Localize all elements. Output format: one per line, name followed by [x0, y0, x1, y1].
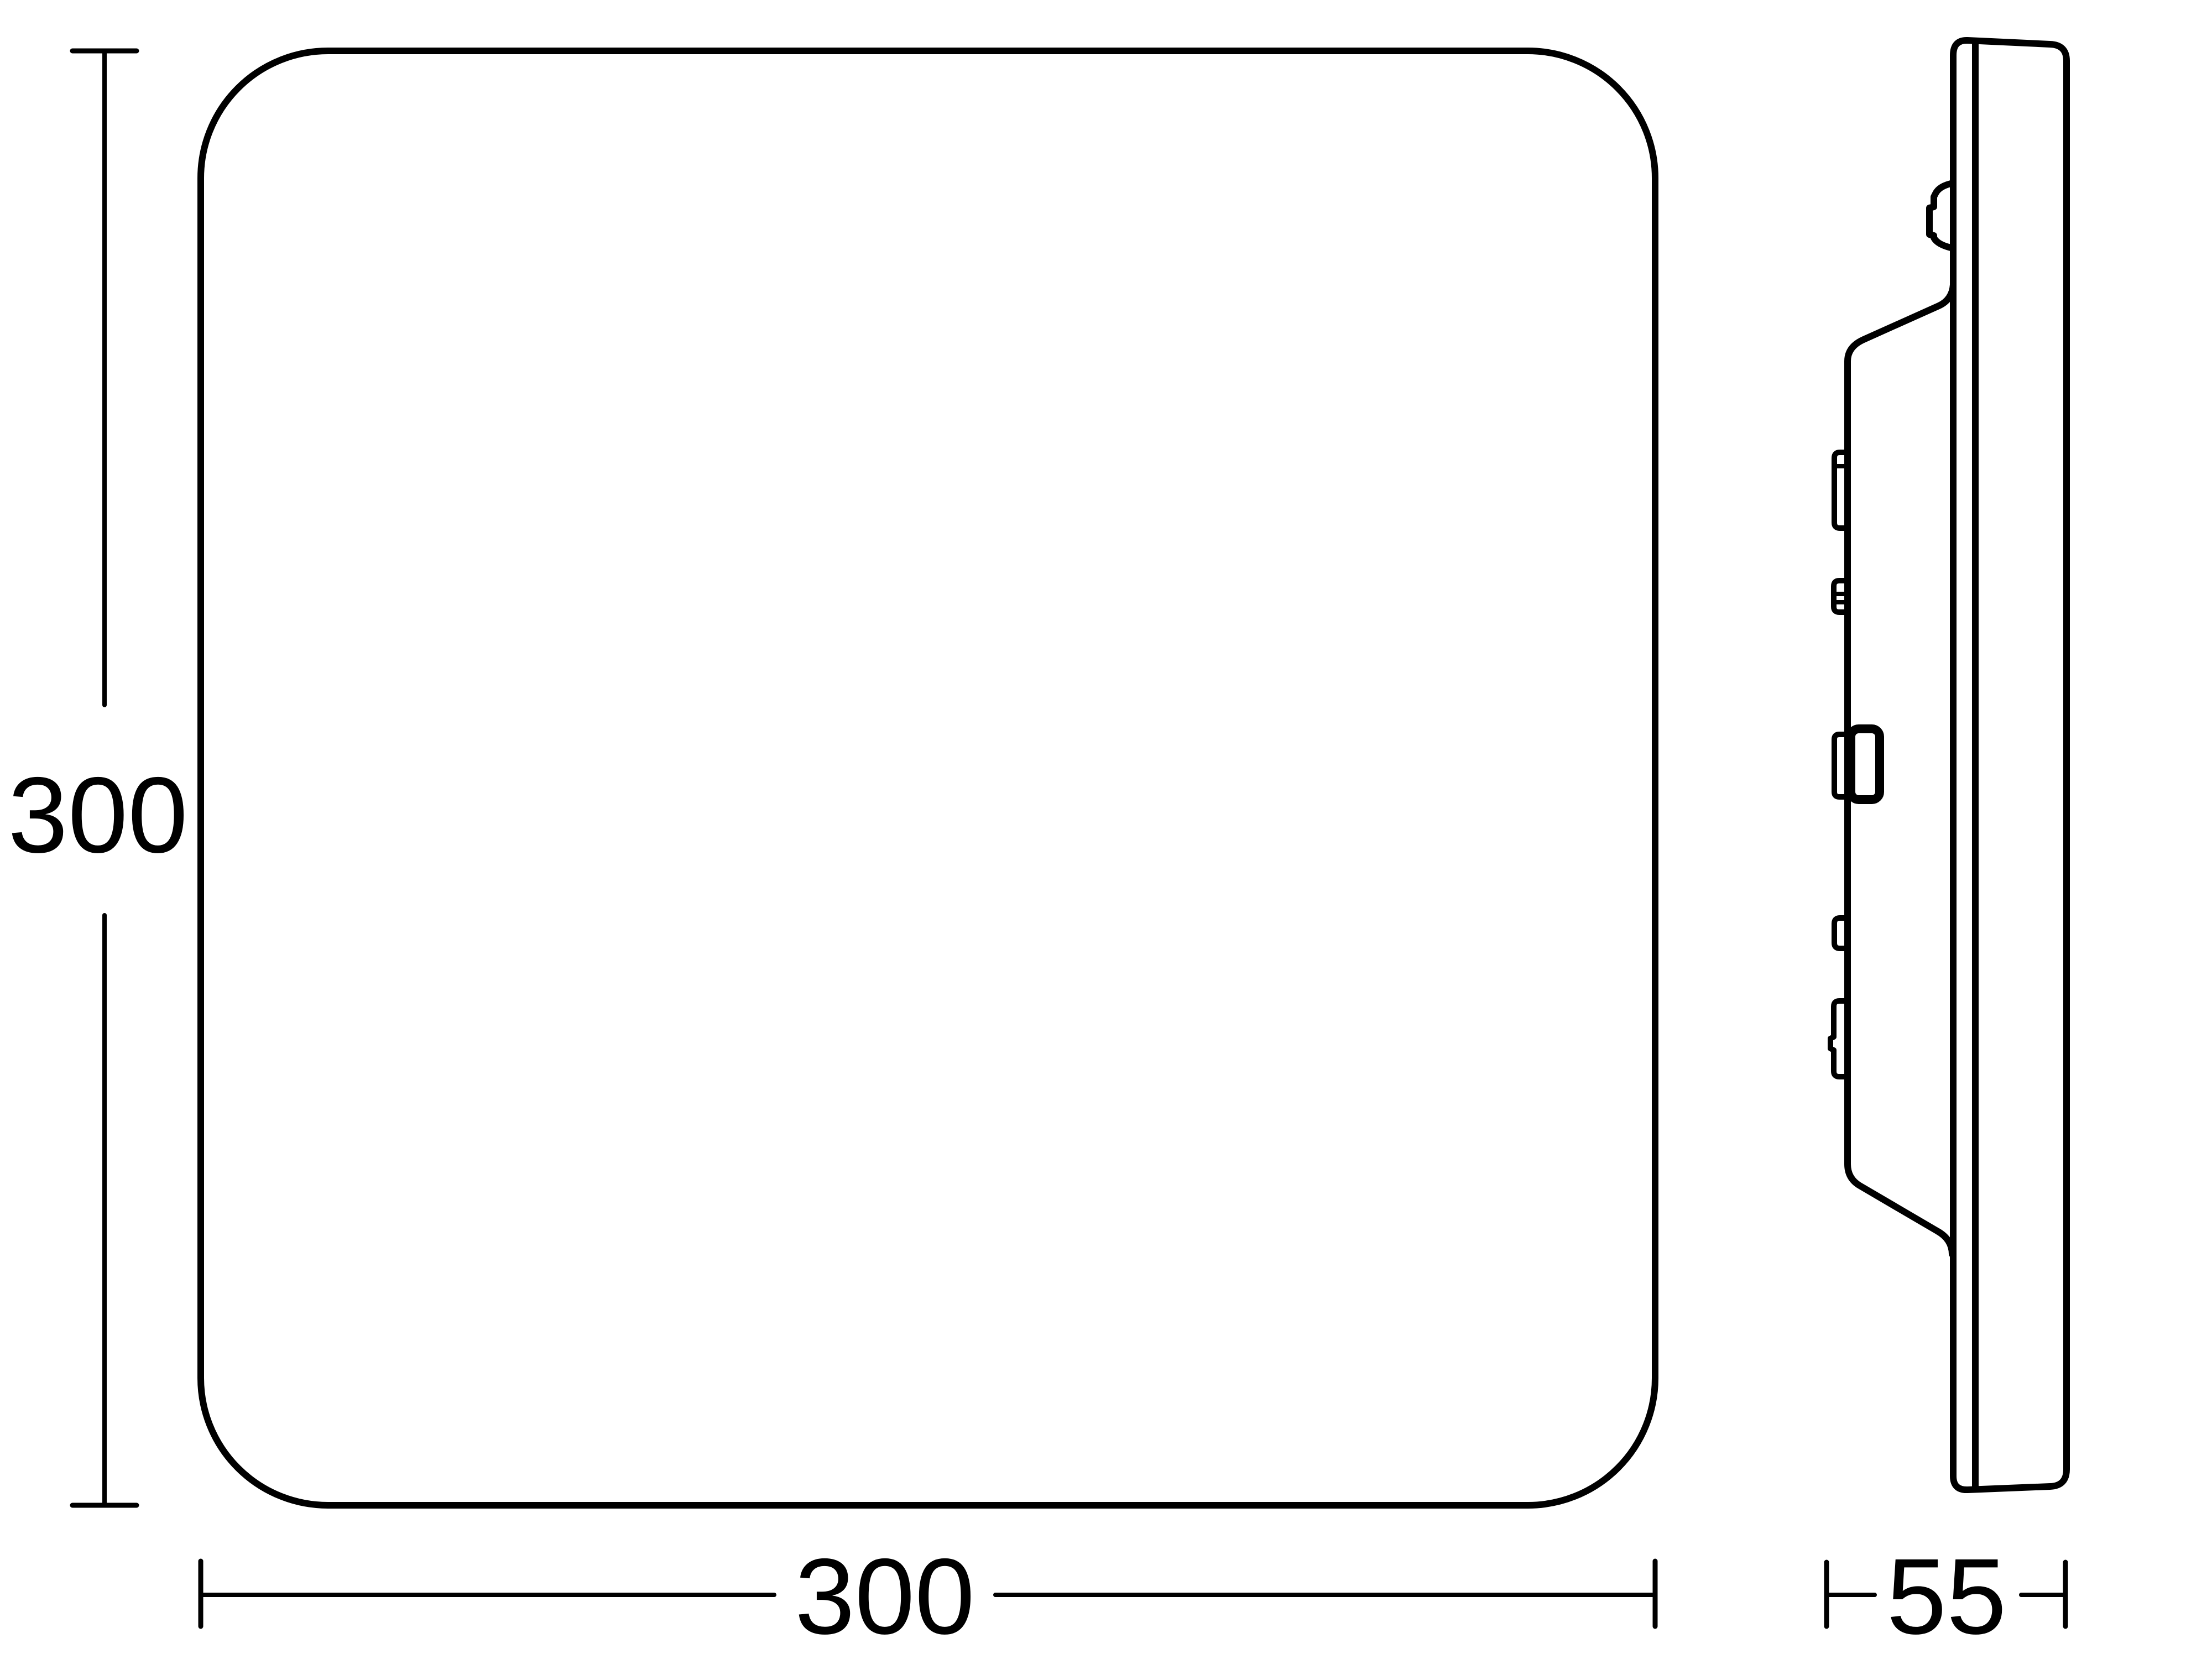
- height-dimension: 300: [8, 51, 187, 1505]
- technical-drawing: 300 300 55: [0, 0, 2212, 1659]
- width-dimension-label: 300: [795, 1536, 974, 1657]
- depth-dimension-label: 55: [1887, 1536, 2007, 1657]
- side-top-clip: [1929, 183, 1953, 248]
- depth-dimension: 55: [1827, 1536, 2065, 1657]
- height-dimension-label: 300: [8, 755, 187, 875]
- front-view: [201, 51, 1655, 1505]
- width-dimension: 300: [201, 1536, 1655, 1657]
- side-housing-outline: [1953, 40, 2067, 1490]
- side-backplate-outline: [1848, 285, 1953, 1254]
- side-view: [1830, 40, 2067, 1490]
- side-connector-box: [1851, 729, 1880, 800]
- front-panel-outline: [201, 51, 1655, 1505]
- dimension-diagram: 300 300 55: [0, 0, 2212, 1659]
